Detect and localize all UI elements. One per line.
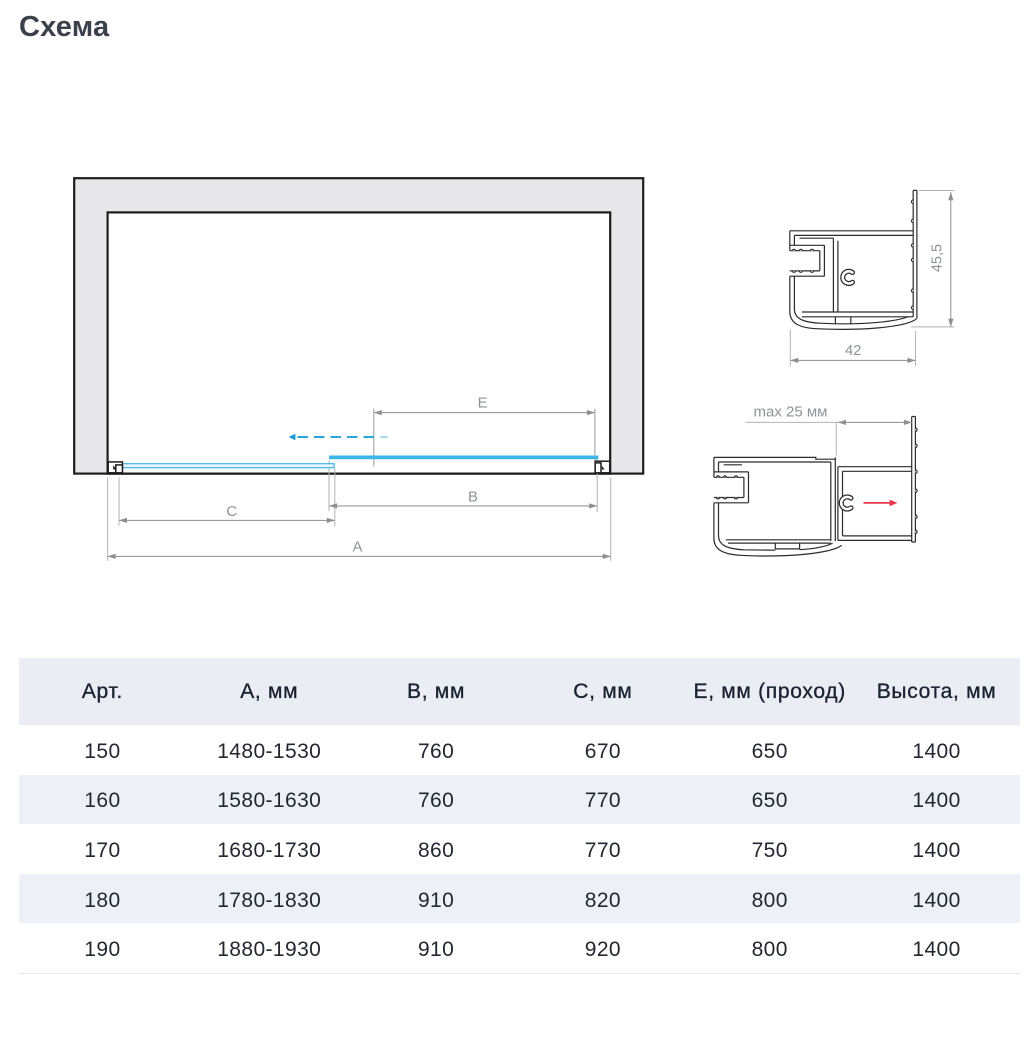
svg-text:E: E (478, 395, 488, 412)
svg-text:max 25 мм: max 25 мм (754, 404, 828, 421)
svg-text:42: 42 (845, 343, 861, 359)
svg-text:C: C (226, 503, 237, 520)
svg-text:45,5: 45,5 (930, 244, 946, 272)
svg-text:B: B (468, 489, 478, 506)
svg-text:A: A (352, 539, 362, 556)
